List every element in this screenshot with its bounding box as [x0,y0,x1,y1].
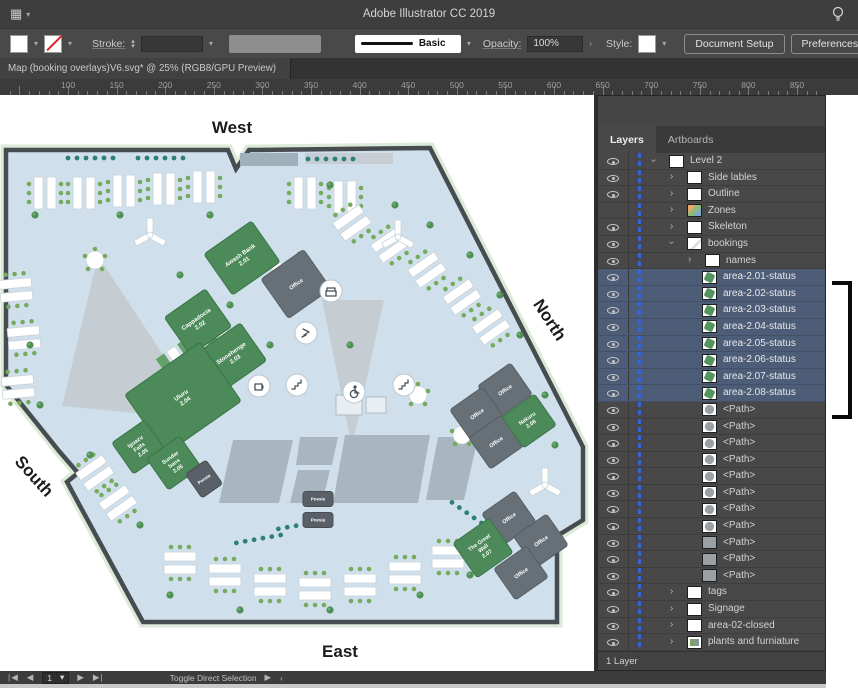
visibility-eye-icon[interactable] [607,291,619,298]
layer-color-bar [638,618,641,634]
screen-edge-strip [0,684,826,688]
layer-name[interactable]: area-2.01-status [723,271,796,282]
layer-thumbnail [687,586,702,599]
layer-row[interactable]: ›plants and furniature [598,634,825,651]
chevron-down-icon: ▾ [60,672,64,683]
layer-row[interactable]: area-2.04-status [598,319,825,336]
expand-chevron-icon[interactable]: › [670,636,673,647]
fill-color-swatch[interactable] [10,35,28,53]
ruler-tick [19,86,20,95]
visibility-eye-icon[interactable] [607,457,619,464]
layer-thumbnail [702,520,717,533]
layer-name[interactable]: Skeleton [708,221,747,232]
layer-name[interactable]: <Path> [723,454,755,465]
layer-thumbnail [702,503,717,516]
layer-name[interactable]: area-2.05-status [723,338,796,349]
layer-thumbnail [702,287,717,300]
visibility-eye-icon[interactable] [607,573,619,580]
document-tab-bar: Map (booking overlays)V6.svg* @ 25% (RGB… [0,58,858,79]
layer-color-bar [638,535,641,551]
chevron-down-icon[interactable]: ▾ [68,39,72,48]
room-label: Poesia [311,518,326,523]
layer-color-bar [638,501,641,517]
layer-name[interactable]: <Path> [723,437,755,448]
visibility-eye-icon[interactable] [607,556,619,563]
layer-name[interactable]: Zones [708,205,736,216]
layer-thumbnail [702,304,717,317]
layer-name[interactable]: Outline [708,188,740,199]
width-profile-preview[interactable] [229,35,321,53]
ruler-label: 150 [110,80,124,90]
expand-chevron-icon[interactable]: › [670,188,673,199]
layer-row[interactable]: <Path> [598,435,825,452]
layer-name[interactable]: <Path> [723,520,755,531]
layer-name[interactable]: <Path> [723,470,755,481]
ruler-label: 500 [450,80,464,90]
workspace: Awash Bank2.01OfficeCappadocia2.02Stoneh… [0,95,858,671]
layer-color-bar [638,153,641,169]
layer-thumbnail [702,420,717,433]
layer-color-bar [638,402,641,418]
back-icon[interactable]: ‹ [280,673,284,683]
layer-name[interactable]: tags [708,586,727,597]
layer-color-bar [638,253,641,269]
expand-chevron-icon[interactable]: › [670,171,673,182]
visibility-eye-icon[interactable] [607,191,619,198]
layer-color-bar [638,319,641,335]
layer-row[interactable]: area-2.07-status [598,369,825,386]
layer-thumbnail [702,569,717,582]
layer-thumbnail [687,171,702,184]
visibility-eye-icon[interactable] [607,589,619,596]
ruler-label: 550 [498,80,512,90]
layer-name[interactable]: plants and furniature [708,636,799,647]
visibility-eye-icon[interactable] [607,324,619,331]
accessible-toilet-icon [343,381,365,403]
previous-artboard-button[interactable]: ◀ [27,672,35,683]
stroke-color-swatch[interactable] [44,35,62,53]
layer-color-bar [638,551,641,567]
layer-name[interactable]: area-2.03-status [723,304,796,315]
ruler-label: 250 [207,80,221,90]
layer-thumbnail [669,155,684,168]
layer-row[interactable]: ›tags [598,584,825,601]
layer-row[interactable]: ›Skeleton [598,219,825,236]
layer-thumbnail [702,486,717,499]
layer-name[interactable]: <Path> [723,503,755,514]
layer-color-bar [638,219,641,235]
expand-chevron-icon[interactable]: › [648,158,659,161]
style-swatch[interactable] [638,35,656,53]
stroke-weight-stepper[interactable]: ▴▾ [131,39,135,49]
layer-thumbnail [702,320,717,333]
layer-color-bar [638,186,641,202]
visibility-eye-icon[interactable] [607,258,619,265]
tab-layers[interactable]: Layers [598,126,656,153]
ruler-label: 850 [790,80,804,90]
layer-name[interactable]: <Path> [723,421,755,432]
layer-thumbnail [687,221,702,234]
layer-name[interactable]: Side lables [708,172,757,183]
coffee-icon [248,375,270,397]
visibility-eye-icon[interactable] [607,639,619,646]
screenshot-margin [826,95,858,688]
status-hint: Toggle Direct Selection [170,673,257,683]
opacity-field[interactable]: 100% [527,36,583,52]
ruler-label: 100 [61,80,75,90]
layer-name[interactable]: area-2.07-status [723,371,796,382]
play-icon[interactable]: ▶ [265,672,273,683]
panel-tabs: Layers Artboards [598,126,825,153]
document-setup-button[interactable]: Document Setup [684,34,784,54]
layer-row[interactable]: ›Level 2 [598,153,825,170]
layer-color-bar [638,634,641,650]
layer-row[interactable]: ›names [598,253,825,270]
layer-name[interactable]: Level 2 [690,155,722,166]
layer-row[interactable]: <Path> [598,568,825,585]
horizontal-ruler: 1001502002503003504004505005506006507007… [0,79,858,96]
layer-name[interactable]: <Path> [723,537,755,548]
chevron-down-icon[interactable]: ▾ [467,39,471,48]
ruler-label: 650 [596,80,610,90]
layer-row[interactable]: area-2.03-status [598,302,825,319]
status-bar: |◀ ◀ 1 ▾ ▶ ▶| Toggle Direct Selection ▶ … [0,671,826,684]
layer-row[interactable]: area-2.05-status [598,336,825,353]
layer-thumbnail [687,237,702,250]
preferences-button[interactable]: Preferences [791,34,858,54]
visibility-eye-icon[interactable] [607,390,619,397]
layer-name[interactable]: area-2.06-status [723,354,796,365]
compass-south: South [11,452,57,501]
layer-thumbnail [702,536,717,549]
expand-chevron-icon[interactable]: › [670,586,673,597]
layer-color-bar [638,170,641,186]
layer-name[interactable]: area-2.04-status [723,321,796,332]
layer-color-bar [638,369,641,385]
layer-color-bar [638,203,641,219]
expand-chevron-icon[interactable]: › [670,619,673,630]
visibility-eye-icon[interactable] [607,224,619,231]
layer-thumbnail [702,337,717,350]
layer-color-bar [638,601,641,617]
visibility-eye-icon[interactable] [607,374,619,381]
canvas-area[interactable]: Awash Bank2.01OfficeCappadocia2.02Stoneh… [0,95,594,671]
visibility-eye-icon[interactable] [607,241,619,248]
printer-icon [320,280,342,302]
layer-row[interactable]: <Path> [598,518,825,535]
illustrator-window: ▦ ▾ Adobe Illustrator CC 2019 ▾ ▾ Stroke… [0,0,858,688]
chevron-down-icon[interactable]: ▾ [662,39,666,48]
expand-chevron-icon[interactable]: › [670,204,673,215]
annotation-bracket [832,281,852,419]
layer-color-bar [638,485,641,501]
layer-thumbnail [702,403,717,416]
visibility-eye-icon[interactable] [607,424,619,431]
layer-thumbnail [687,204,702,217]
last-artboard-button[interactable]: ▶| [93,672,104,683]
layer-name[interactable]: bookings [708,238,748,249]
ruler-label: 750 [693,80,707,90]
layer-thumbnail [687,636,702,649]
panel-dock-area [598,96,825,127]
layer-color-bar [638,352,641,368]
visibility-eye-icon[interactable] [607,523,619,530]
control-bar: ▾ ▾ Stroke: ▴▾ ▾ Basic ▾ Opacity: 100% ›… [0,28,858,58]
layer-row[interactable]: area-2.08-status [598,385,825,402]
chevron-down-icon[interactable]: ▾ [209,39,213,48]
layer-color-bar [638,385,641,401]
layer-row[interactable]: <Path> [598,468,825,485]
visibility-eye-icon[interactable] [607,540,619,547]
expand-chevron-icon[interactable]: › [670,603,673,614]
layers-panel: Layers Artboards ›Level 2›Side lables›Ou… [597,95,826,671]
visibility-eye-icon[interactable] [607,407,619,414]
layer-color-bar [638,452,641,468]
layer-name[interactable]: names [726,255,756,266]
layer-row[interactable]: <Path> [598,551,825,568]
compass-east: East [322,642,358,661]
visibility-eye-icon[interactable] [607,473,619,480]
layer-color-bar [638,236,641,252]
chevron-right-icon[interactable]: › [589,39,592,48]
expand-chevron-icon[interactable]: › [688,254,691,265]
ruler-label: 200 [158,80,172,90]
artboard-number: 1 [47,673,52,683]
visibility-eye-icon[interactable] [607,307,619,314]
layer-name[interactable]: area-02-closed [708,620,775,631]
layer-row[interactable]: ›Zones [598,203,825,220]
brush-stroke-preview [361,42,413,45]
layer-color-bar [638,468,641,484]
layer-color-bar [638,568,641,584]
layer-name[interactable]: <Path> [723,553,755,564]
visibility-eye-icon[interactable] [607,506,619,513]
expand-chevron-icon[interactable]: › [666,241,677,244]
ruler-label: 450 [401,80,415,90]
layer-color-bar [638,435,641,451]
layer-thumbnail [702,370,717,383]
layer-row[interactable]: area-2.01-status [598,269,825,286]
ruler-label: 300 [255,80,269,90]
visibility-eye-icon[interactable] [607,623,619,630]
layer-row[interactable]: ›Side lables [598,170,825,187]
next-artboard-button[interactable]: ▶ [77,672,85,683]
visibility-eye-icon[interactable] [607,606,619,613]
layer-thumbnail [702,387,717,400]
layer-name[interactable]: <Path> [723,404,755,415]
visibility-eye-icon[interactable] [607,175,619,182]
layer-thumbnail [687,619,702,632]
compass-north: North [529,296,570,344]
artboard-number-dropdown[interactable]: 1 ▾ [42,672,69,684]
layer-row[interactable]: <Path> [598,535,825,552]
layer-row[interactable]: <Path> [598,501,825,518]
stroke-weight-field[interactable] [141,36,203,52]
layer-name[interactable]: Signage [708,603,745,614]
style-label: Style: [606,38,632,50]
phone-booth-icon [295,322,317,344]
stairs-icon [286,374,308,396]
layer-thumbnail [702,354,717,367]
stroke-label[interactable]: Stroke: [92,38,125,50]
layer-thumbnail [702,271,717,284]
compass-west: West [212,118,253,137]
stairs-icon [393,374,415,396]
layer-row[interactable]: <Path> [598,402,825,419]
layer-name[interactable]: area-2.02-status [723,288,796,299]
floor-plan-artwork[interactable]: Awash Bank2.01OfficeCappadocia2.02Stoneh… [0,95,594,671]
brush-name: Basic [419,38,446,49]
title-bar: ▦ ▾ Adobe Illustrator CC 2019 [0,0,858,28]
layer-name[interactable]: <Path> [723,570,755,581]
layer-row[interactable]: <Path> [598,419,825,436]
visibility-eye-icon[interactable] [607,440,619,447]
room-poesis[interactable]: Poesis [303,492,333,507]
layer-row[interactable]: area-2.06-status [598,352,825,369]
layer-color-bar [638,336,641,352]
layer-color-bar [638,419,641,435]
layer-color-bar [638,518,641,534]
visibility-eye-icon[interactable] [607,158,619,165]
brush-definition-dropdown[interactable]: Basic [355,35,461,53]
layer-row[interactable]: ›Outline [598,186,825,203]
layer-thumbnail [687,188,702,201]
expand-chevron-icon[interactable]: › [670,221,673,232]
layer-row[interactable]: <Path> [598,452,825,469]
opacity-label[interactable]: Opacity: [483,38,522,50]
ruler-label: 400 [353,80,367,90]
visibility-eye-icon[interactable] [607,357,619,364]
layer-name[interactable]: <Path> [723,487,755,498]
layer-color-bar [638,286,641,302]
first-artboard-button[interactable]: |◀ [8,672,19,683]
tab-artboards[interactable]: Artboards [656,126,726,153]
document-tab[interactable]: Map (booking overlays)V6.svg* @ 25% (RGB… [0,58,291,79]
layer-thumbnail [702,453,717,466]
ruler-label: 800 [741,80,755,90]
chevron-down-icon[interactable]: ▾ [34,39,38,48]
visibility-eye-icon[interactable] [607,341,619,348]
layer-row[interactable]: area-2.02-status [598,286,825,303]
layer-thumbnail [702,437,717,450]
layer-thumbnail [687,603,702,616]
layer-row[interactable]: ›area-02-closed [598,618,825,635]
room-poesia[interactable]: Poesia [303,513,333,528]
ruler-label: 600 [547,80,561,90]
app-title: Adobe Illustrator CC 2019 [0,8,858,20]
layer-name[interactable]: area-2.08-status [723,387,796,398]
room-label: Poesis [311,497,326,502]
layer-thumbnail [702,553,717,566]
layers-list: ›Level 2›Side lables›Outline›Zones›Skele… [598,153,825,651]
layer-color-bar [638,584,641,600]
layer-row[interactable]: <Path> [598,485,825,502]
visibility-eye-icon[interactable] [607,490,619,497]
ruler-label: 700 [644,80,658,90]
layer-thumbnail [705,254,720,267]
layer-thumbnail [702,470,717,483]
ruler-label: 350 [304,80,318,90]
lightbulb-icon[interactable] [832,6,844,22]
layer-row[interactable]: ›Signage [598,601,825,618]
layer-row[interactable]: ›bookings [598,236,825,253]
visibility-eye-icon[interactable] [607,274,619,281]
layer-color-bar [638,302,641,318]
layer-color-bar [638,269,641,285]
layers-count-status: 1 Layer [598,651,825,670]
